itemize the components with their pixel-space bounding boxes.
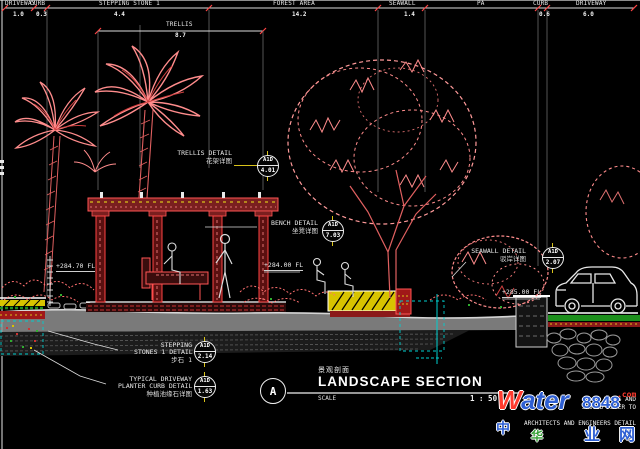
dim-value-driveway-left: 1.0 <box>13 12 24 19</box>
callout-trellis-leader <box>234 165 258 166</box>
path-section-yellow <box>328 289 411 317</box>
scale-value: 1 : 50 <box>470 395 497 404</box>
groundcover-scribbles <box>2 280 486 303</box>
bubble-sheet-number: 2.14 <box>195 352 215 362</box>
detail-bubble-planter: A1D 1.63 <box>194 376 216 398</box>
trellis-paving <box>86 302 286 312</box>
ground-section <box>0 310 520 356</box>
watermark-cn-1: 中 <box>496 418 510 438</box>
elevation-label-right: +285.00 FL <box>502 289 541 298</box>
dim-label-curb-left: CURB <box>30 1 45 8</box>
dim-value-stepping-stone: 4.4 <box>114 12 125 19</box>
dim-label-driveway-right: DRIVEWAY <box>576 1 607 8</box>
dim-value-curb-right: 0.6 <box>539 12 550 19</box>
riprap-stones <box>547 329 620 382</box>
palm-tree-main <box>95 46 202 198</box>
person-seated-1 <box>314 259 326 295</box>
watermark-cn-4: 网 <box>619 421 635 445</box>
watermark-brand-ater: ater <box>521 385 569 415</box>
dim-value-seawall: 1.4 <box>404 12 415 19</box>
detail-bubble-stepping: A1D 2.14 <box>194 341 216 363</box>
dim-label-seawall: SEAWALL <box>389 1 416 8</box>
elevation-label-left: +284.70 FL <box>56 263 95 272</box>
callout-planter-cn: 种植池缘石详图 <box>118 391 192 398</box>
dim-value-driveway-right: 6.0 <box>583 12 594 19</box>
elevation-label-center: +284.00 FL <box>264 262 303 271</box>
dim-label-trellis: TRELLIS <box>166 22 193 29</box>
bubble-sheet-number: 4.01 <box>258 166 278 176</box>
trellis-structure <box>88 192 278 302</box>
detail-bubble-bench: A1D 7.03 <box>322 220 344 242</box>
bubble-top-label: A1D <box>258 156 278 166</box>
callout-trellis-cn: 花架详图 <box>172 158 232 165</box>
title-chinese: 景观剖面 <box>318 366 350 374</box>
watermark-number: 8848 <box>582 393 620 413</box>
bubble-top-label: A1D <box>543 248 563 258</box>
dim-value-forest-area: 14.2 <box>292 12 306 19</box>
palm-tree-left <box>15 82 98 292</box>
stepping-stones <box>48 303 91 309</box>
driveway-right <box>548 313 640 327</box>
detail-bubble-seawall: A1D 2.07 <box>542 247 564 269</box>
car <box>556 267 637 313</box>
bubble-sheet-number: 1.63 <box>195 387 215 397</box>
bubble-top-label: A1D <box>323 221 343 231</box>
callout-bench-cn: 坐凳详图 <box>260 228 318 235</box>
bubble-sheet-number: 2.07 <box>543 258 563 268</box>
watermark-brand-w: W <box>497 385 521 415</box>
watermark-dotcom: .com <box>617 390 636 399</box>
detail-bubble-trellis: A1D 4.01 <box>257 155 279 177</box>
bubble-sheet-number: 7.03 <box>323 231 343 241</box>
dim-value-curb-left: 0.3 <box>36 12 47 19</box>
bubble-top-label: A1D <box>195 377 215 387</box>
dim-label-curb-right: CURB <box>533 1 548 8</box>
watermark-cn-2: 华 <box>531 427 543 444</box>
far-right-foliage <box>586 166 640 258</box>
section-letter-bubble: A <box>260 378 286 404</box>
dim-value-trellis: 8.7 <box>175 33 186 40</box>
dim-label-forest-area: FOREST AREA <box>273 1 315 8</box>
scale-label: SCALE <box>318 396 336 403</box>
watermark-cn-3: 业 <box>584 421 600 445</box>
watermark-brand: Water <box>497 385 569 416</box>
callout-seawall-cn: 驳岸详图 <box>468 256 526 263</box>
palm-shrub-small <box>74 150 116 172</box>
dim-label-stepping-stone: STEPPING STONE 1 <box>99 1 160 8</box>
dim-label-pa: PA <box>477 1 485 8</box>
bench <box>142 258 208 300</box>
deciduous-tree <box>288 60 476 298</box>
cad-landscape-section-drawing: DRIVEWAY 1.0 CURB 0.3 STEPPING STONE 1 4… <box>0 0 640 449</box>
bubble-top-label: A1D <box>195 342 215 352</box>
callout-stepping-cn: 步石 1 <box>134 357 192 364</box>
page-title: LANDSCAPE SECTION <box>318 374 483 390</box>
